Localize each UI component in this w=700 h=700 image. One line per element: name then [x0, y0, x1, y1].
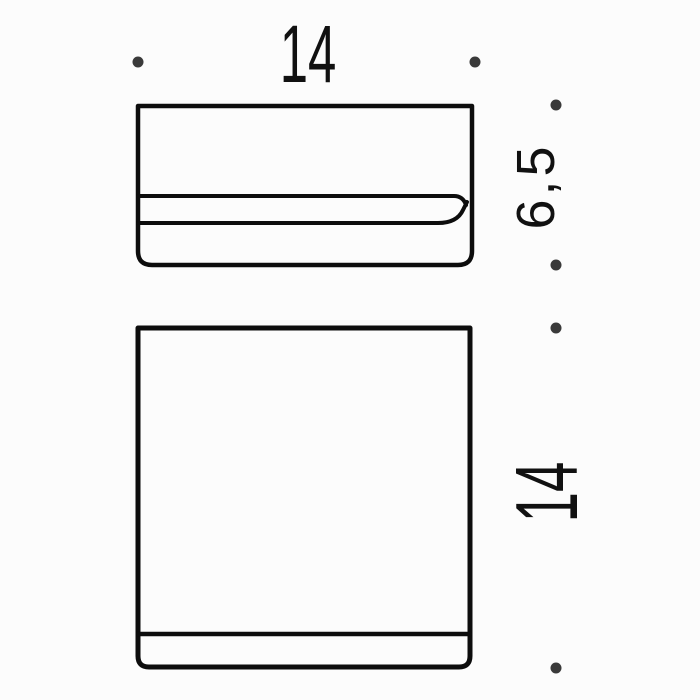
dimension-dot: [133, 57, 144, 68]
side-view-lip-curve: [138, 202, 467, 223]
side-view-outline: [138, 106, 472, 265]
dimension-dot: [551, 100, 562, 111]
front-view-outline: [138, 328, 470, 667]
drawing-linework: [0, 0, 700, 700]
dimension-label-width: 14: [280, 14, 337, 96]
dimension-label-depth: 6,5: [509, 142, 563, 229]
side-view-body: [138, 106, 472, 265]
dimension-dots: [133, 57, 562, 674]
dimension-dot: [551, 663, 562, 674]
dimension-label-height: 14: [503, 462, 591, 523]
dimension-dot: [470, 57, 481, 68]
dimension-dot: [551, 260, 562, 271]
side-view-shelf-line: [138, 196, 466, 205]
dimension-dot: [551, 323, 562, 334]
front-view-body: [138, 328, 470, 667]
technical-drawing: 14 6,5 14: [0, 0, 700, 700]
